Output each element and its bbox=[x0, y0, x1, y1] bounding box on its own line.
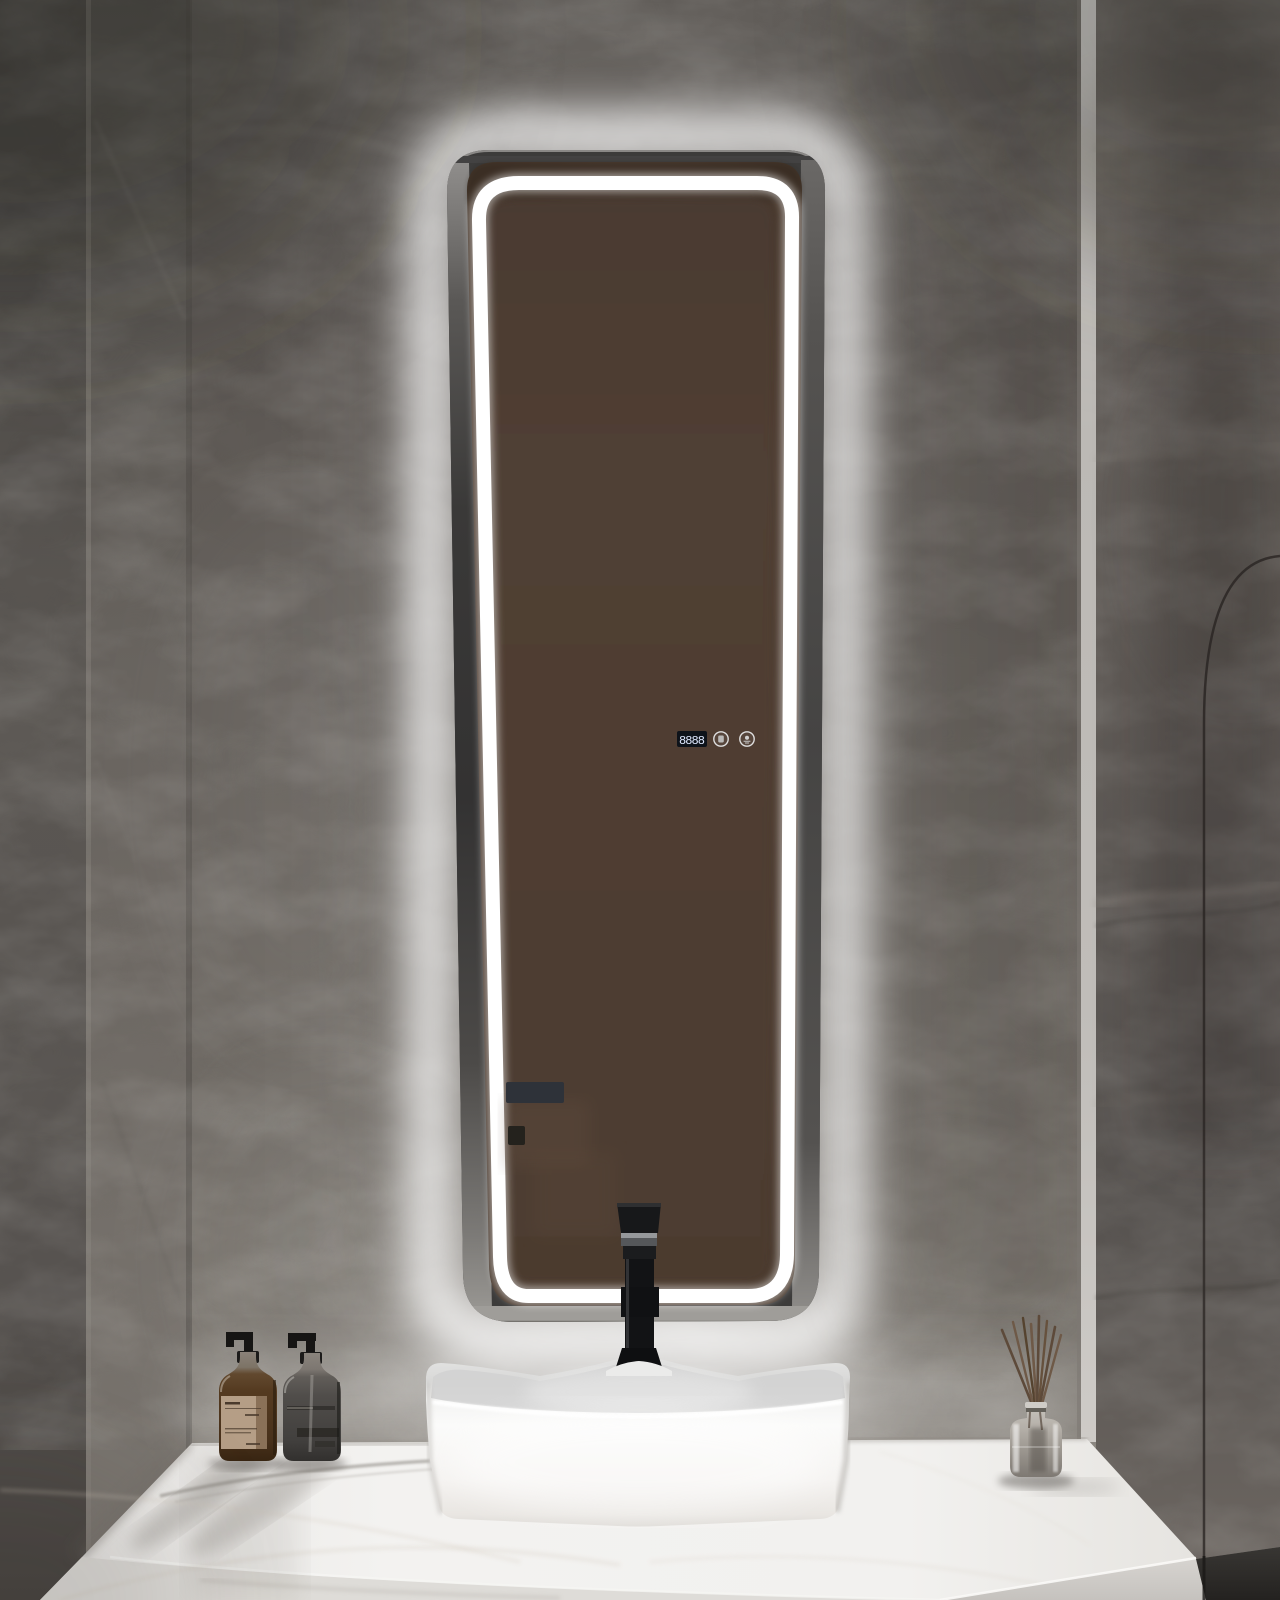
svg-text:8888: 8888 bbox=[679, 734, 705, 748]
